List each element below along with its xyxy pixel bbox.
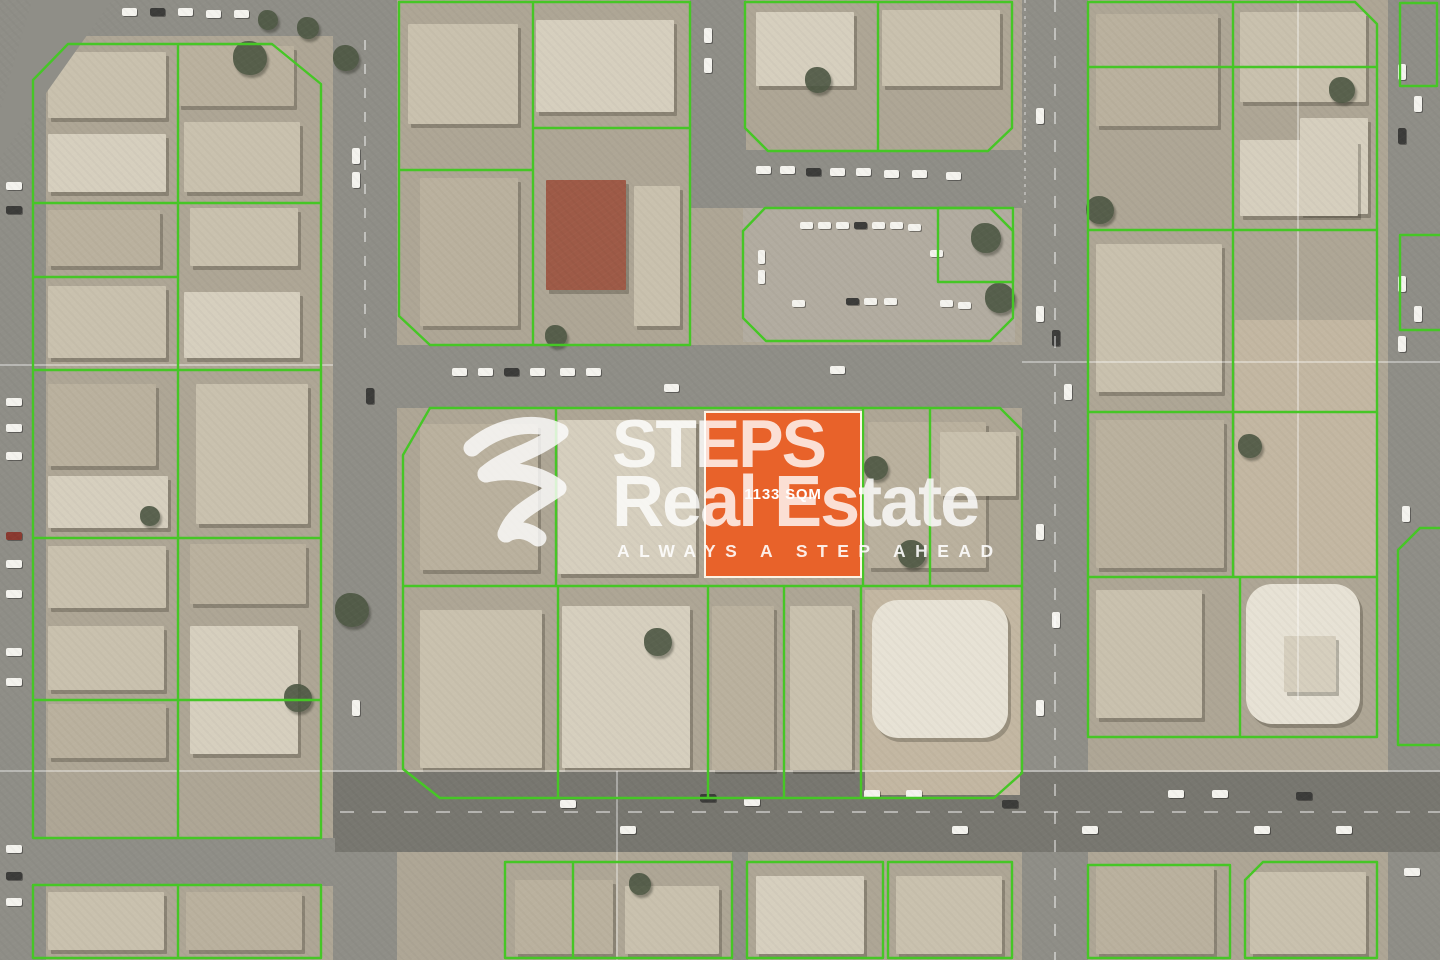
road [0,0,112,158]
satellite-map: 1133 SQM STEPS Real Estate ALWAYS A STEP… [0,0,1440,960]
parcel-outline [888,862,1012,958]
parcel-outline [747,862,883,958]
parcel-outline [1398,528,1440,745]
parcel-outline [1400,235,1440,330]
highlighted-plot: 1133 SQM [704,411,862,578]
parcel-outline [399,2,690,345]
parcel-outline [1245,862,1377,958]
parcel-outline [505,862,732,958]
parcel-outline [1088,865,1230,958]
parcel-outline [743,208,1013,341]
parcel-outline [1400,3,1437,86]
plot-area-label: 1133 SQM [744,486,821,503]
